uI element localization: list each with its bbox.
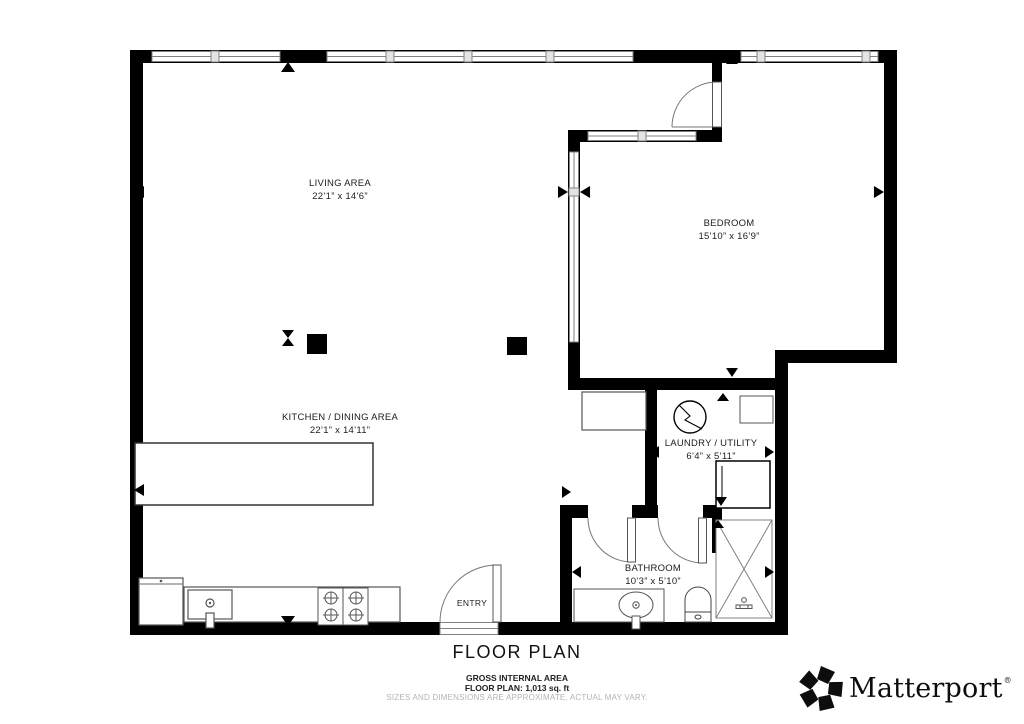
wall [130,50,143,635]
room-label-living-area: LIVING AREA 22’1” x 14’6” [309,177,371,203]
wall [884,50,897,363]
room-name: LAUNDRY / UTILITY [665,437,758,450]
cabinet [582,392,646,430]
laundry-shelf [740,396,773,423]
page-title: FLOOR PLAN [452,642,581,663]
column [307,334,327,354]
dimension-arrow [717,393,729,401]
doors [440,82,722,635]
cooktop [318,588,368,625]
dimension-arrow [562,486,571,498]
wall [775,350,897,363]
room-label-kitchen-dining: KITCHEN / DINING AREA 22’1” x 14’11” [282,411,398,437]
footer-notes: GROSS INTERNAL AREA FLOOR PLAN: 1,013 sq… [386,674,647,703]
room-name: BATHROOM [625,562,681,575]
dimension-arrow [282,338,294,346]
floor-area-value: FLOOR PLAN: 1,013 sq. ft [386,684,647,694]
dimension-arrow [572,566,581,578]
window [741,51,878,62]
wall [712,127,722,142]
wall [632,505,658,518]
laundry-door [658,518,707,563]
room-dimensions: 22’1” x 14’11” [282,424,398,437]
room-name: LIVING AREA [309,177,371,190]
dimension-arrow [580,186,590,198]
brand-name: Matterport [849,673,1003,704]
dimension-arrow [281,62,295,72]
column [507,337,527,355]
bathroom-door [588,518,636,562]
registered-mark: ® [1004,676,1012,685]
refrigerator [139,578,183,625]
room-dimensions: 6’4” x 5’11” [665,450,758,463]
shower [716,520,772,618]
window [152,51,280,62]
room-dimensions: 10’3” x 5’10” [625,575,681,588]
window [569,152,579,342]
bedroom-door [672,82,722,127]
room-name: BEDROOM [698,217,759,230]
floor-plan-page: LIVING AREA 22’1” x 14’6” BEDROOM 15’10”… [0,0,1024,724]
washer [674,401,706,433]
brand-wordmark: Matterport® [849,673,1012,704]
room-dimensions: 15’10” x 16’9” [698,230,759,243]
wall [560,505,572,635]
wall [560,505,588,518]
matterport-logo: Matterport® [793,664,1012,712]
room-dimensions: 22’1” x 14’6” [309,190,371,203]
windows [152,51,878,342]
dimension-arrow [765,446,774,458]
kitchen-island [135,443,373,505]
room-label-laundry-utility: LAUNDRY / UTILITY 6’4” x 5’11” [665,437,758,463]
dimension-arrow [874,186,884,198]
dimension-arrow [282,330,294,338]
room-label-bedroom: BEDROOM 15’10” x 16’9” [698,217,759,243]
room-label-bathroom: BATHROOM 10’3” x 5’10” [625,562,681,588]
room-label-entry: ENTRY [457,598,487,608]
room-name: KITCHEN / DINING AREA [282,411,398,424]
wall [712,63,722,82]
wall [568,378,788,390]
logo-icon-spacer [793,664,843,712]
dimension-arrow [726,368,738,377]
toilet [685,587,711,622]
dimension-arrow [558,186,568,198]
floor-plan-drawing [0,0,1024,724]
wall [775,350,788,635]
window [327,51,633,62]
window [588,131,696,141]
disclaimer-text: SIZES AND DIMENSIONS ARE APPROXIMATE, AC… [386,693,647,703]
